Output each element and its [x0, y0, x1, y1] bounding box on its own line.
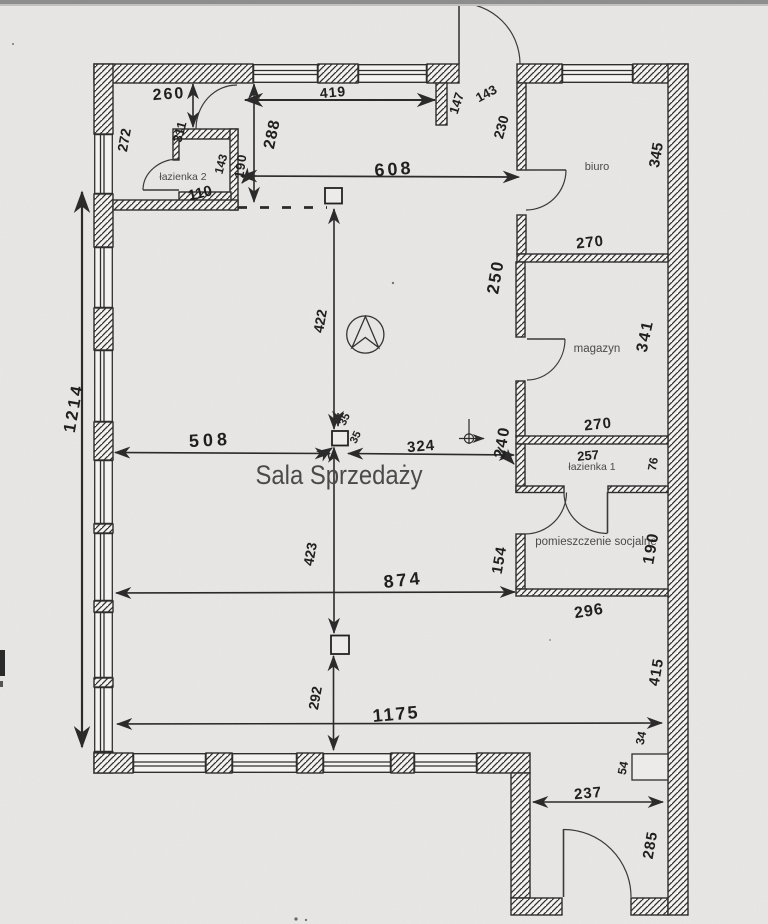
- svg-text:270: 270: [575, 233, 605, 253]
- svg-text:76: 76: [645, 456, 661, 472]
- svg-text:1175: 1175: [372, 702, 421, 726]
- svg-text:508: 508: [188, 429, 231, 451]
- svg-text:biuro: biuro: [585, 161, 609, 173]
- svg-text:270: 270: [583, 415, 613, 435]
- svg-text:260: 260: [152, 85, 186, 104]
- svg-text:łazienka 2: łazienka 2: [159, 171, 206, 183]
- svg-text:324: 324: [406, 437, 435, 456]
- svg-text:Sala Sprzedaży: Sala Sprzedaży: [256, 460, 423, 490]
- svg-text:pomieszczenie socjalne: pomieszczenie socjalne: [535, 536, 656, 548]
- svg-text:237: 237: [573, 784, 602, 803]
- svg-text:419: 419: [319, 83, 347, 101]
- svg-text:608: 608: [374, 158, 414, 181]
- svg-text:łazienka 1: łazienka 1: [568, 461, 615, 473]
- svg-text:257: 257: [577, 447, 600, 464]
- svg-text:874: 874: [383, 568, 424, 592]
- svg-text:magazyn: magazyn: [574, 343, 621, 355]
